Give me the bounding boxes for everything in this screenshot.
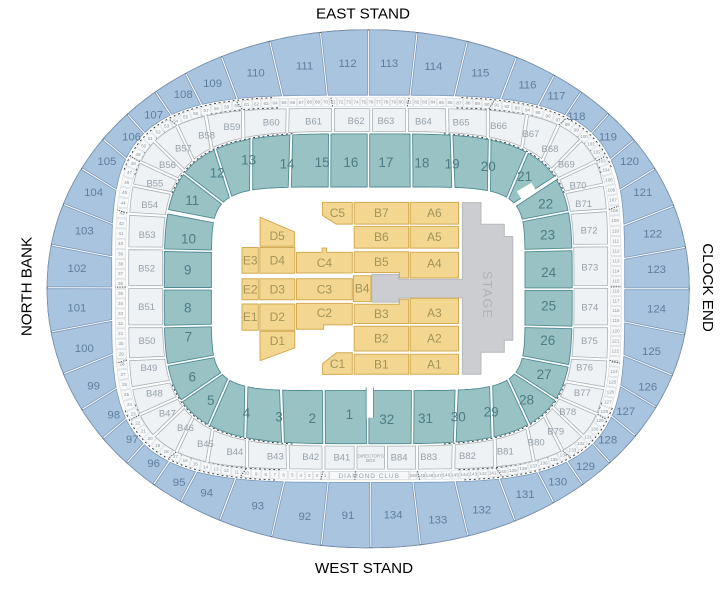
svg-text:102: 102 <box>67 263 86 275</box>
svg-text:7: 7 <box>274 472 277 477</box>
svg-text:B43: B43 <box>267 451 284 462</box>
svg-text:59: 59 <box>224 104 230 109</box>
svg-text:24: 24 <box>127 402 133 407</box>
svg-text:98: 98 <box>565 122 571 127</box>
svg-text:32: 32 <box>118 321 124 326</box>
svg-text:B1: B1 <box>374 357 389 371</box>
svg-text:100: 100 <box>580 134 588 139</box>
svg-text:B41: B41 <box>333 452 350 463</box>
svg-text:131: 131 <box>584 434 592 439</box>
svg-text:B60: B60 <box>263 118 280 129</box>
svg-text:B54: B54 <box>141 200 158 211</box>
svg-text:9: 9 <box>255 471 258 476</box>
svg-text:CLOCK END: CLOCK END <box>699 243 716 332</box>
svg-text:21: 21 <box>517 169 532 184</box>
svg-text:B50: B50 <box>139 336 156 347</box>
svg-text:B63: B63 <box>377 116 394 127</box>
svg-text:61: 61 <box>244 102 250 107</box>
svg-text:132: 132 <box>472 505 491 517</box>
svg-text:E2: E2 <box>243 282 258 296</box>
svg-text:39: 39 <box>118 251 124 256</box>
svg-text:95: 95 <box>173 477 186 489</box>
svg-text:12: 12 <box>224 468 230 473</box>
svg-text:15: 15 <box>193 462 199 467</box>
svg-text:38: 38 <box>118 261 124 266</box>
svg-text:100: 100 <box>75 343 94 355</box>
svg-text:115: 115 <box>612 279 620 284</box>
svg-text:B59: B59 <box>224 122 241 133</box>
svg-text:128: 128 <box>598 435 617 447</box>
svg-text:B66: B66 <box>490 121 507 132</box>
svg-text:82: 82 <box>414 100 420 105</box>
svg-text:121: 121 <box>633 187 652 199</box>
svg-text:26: 26 <box>122 382 128 387</box>
svg-text:126: 126 <box>607 390 615 395</box>
svg-text:40: 40 <box>118 241 124 246</box>
svg-text:106: 106 <box>122 131 141 143</box>
svg-text:60: 60 <box>234 103 240 108</box>
svg-text:D3: D3 <box>270 282 286 296</box>
svg-text:B51: B51 <box>138 302 155 313</box>
svg-text:A5: A5 <box>427 230 442 244</box>
svg-text:63: 63 <box>263 101 269 106</box>
svg-text:D5: D5 <box>270 229 286 243</box>
svg-text:31: 31 <box>418 411 433 426</box>
svg-text:27: 27 <box>537 367 552 382</box>
svg-text:101: 101 <box>587 142 595 147</box>
svg-text:32: 32 <box>379 412 394 427</box>
svg-text:141: 141 <box>489 470 497 475</box>
svg-text:129: 129 <box>576 461 595 473</box>
svg-text:B83: B83 <box>420 452 437 463</box>
svg-text:46: 46 <box>124 180 130 185</box>
svg-text:121: 121 <box>612 338 620 343</box>
svg-text:B58: B58 <box>198 130 215 141</box>
svg-text:B77: B77 <box>574 388 591 399</box>
svg-text:20: 20 <box>481 159 496 174</box>
svg-text:69: 69 <box>315 100 321 105</box>
svg-text:11: 11 <box>234 470 239 475</box>
svg-text:113: 113 <box>380 58 398 70</box>
svg-text:90: 90 <box>484 102 490 107</box>
svg-text:A2: A2 <box>427 332 442 346</box>
svg-text:B45: B45 <box>197 439 214 450</box>
svg-text:122: 122 <box>643 229 662 241</box>
svg-text:48: 48 <box>131 161 137 166</box>
svg-text:33: 33 <box>118 311 124 316</box>
svg-text:144: 144 <box>460 472 468 477</box>
svg-text:B65: B65 <box>453 117 470 128</box>
svg-text:E1: E1 <box>243 310 258 324</box>
svg-text:3: 3 <box>308 473 311 478</box>
svg-text:3: 3 <box>275 410 283 425</box>
svg-text:D4: D4 <box>270 253 286 267</box>
svg-text:B71: B71 <box>575 199 592 210</box>
svg-text:81: 81 <box>406 100 412 105</box>
svg-text:66: 66 <box>290 100 296 105</box>
svg-text:4: 4 <box>243 406 251 421</box>
svg-text:93: 93 <box>251 500 264 512</box>
svg-text:2: 2 <box>316 473 319 478</box>
svg-text:92: 92 <box>504 104 510 109</box>
svg-text:135: 135 <box>550 457 558 462</box>
svg-text:114: 114 <box>424 61 442 73</box>
svg-text:97: 97 <box>126 434 139 446</box>
svg-text:101: 101 <box>67 303 86 315</box>
svg-text:1: 1 <box>324 473 327 478</box>
svg-text:107: 107 <box>609 198 617 203</box>
svg-text:110: 110 <box>612 228 620 233</box>
svg-text:B64: B64 <box>415 116 432 127</box>
svg-text:34: 34 <box>118 301 124 306</box>
svg-text:17: 17 <box>378 155 393 170</box>
svg-text:137: 137 <box>530 464 538 469</box>
svg-text:109: 109 <box>611 218 619 223</box>
svg-text:50: 50 <box>141 144 147 149</box>
svg-text:70: 70 <box>323 100 329 105</box>
svg-text:117: 117 <box>547 90 565 102</box>
svg-text:B3: B3 <box>374 307 389 321</box>
svg-text:111: 111 <box>296 61 313 73</box>
svg-text:B49: B49 <box>140 363 157 374</box>
svg-text:10: 10 <box>181 232 196 247</box>
svg-text:22: 22 <box>135 420 141 425</box>
svg-text:B73: B73 <box>581 263 598 274</box>
svg-text:51: 51 <box>148 136 154 141</box>
svg-text:E3: E3 <box>243 253 258 267</box>
svg-text:28: 28 <box>519 393 534 408</box>
svg-text:117: 117 <box>612 298 620 303</box>
svg-text:B61: B61 <box>305 116 322 127</box>
svg-text:87: 87 <box>456 100 462 105</box>
svg-text:13: 13 <box>241 153 256 168</box>
svg-text:19: 19 <box>155 443 161 448</box>
svg-text:30: 30 <box>451 410 466 425</box>
svg-text:44: 44 <box>120 200 126 205</box>
svg-text:119: 119 <box>599 132 617 144</box>
svg-text:14: 14 <box>280 156 296 171</box>
svg-text:36: 36 <box>118 281 124 286</box>
svg-text:95: 95 <box>535 110 541 115</box>
svg-text:45: 45 <box>122 190 128 195</box>
svg-text:134: 134 <box>560 453 568 458</box>
svg-text:96: 96 <box>546 113 552 118</box>
svg-text:B44: B44 <box>226 447 243 458</box>
svg-text:30: 30 <box>118 341 124 346</box>
svg-text:B48: B48 <box>146 389 163 400</box>
svg-text:41: 41 <box>118 231 124 236</box>
svg-text:125: 125 <box>609 379 617 384</box>
svg-text:31: 31 <box>118 331 124 336</box>
svg-text:DIAMOND CLUB: DIAMOND CLUB <box>339 473 400 480</box>
svg-text:120: 120 <box>612 328 620 333</box>
svg-text:105: 105 <box>605 177 613 182</box>
svg-text:133: 133 <box>569 447 577 452</box>
svg-text:B84: B84 <box>391 452 408 463</box>
svg-text:29: 29 <box>119 351 125 356</box>
svg-text:B79: B79 <box>547 427 564 438</box>
svg-text:A4: A4 <box>427 257 442 271</box>
svg-text:77: 77 <box>376 100 382 105</box>
svg-text:12: 12 <box>210 166 225 181</box>
svg-text:113: 113 <box>612 259 620 264</box>
svg-text:94: 94 <box>525 108 531 113</box>
svg-text:25: 25 <box>541 298 556 313</box>
svg-text:85: 85 <box>439 100 445 105</box>
svg-text:B56: B56 <box>159 160 176 171</box>
svg-text:B7: B7 <box>374 206 389 220</box>
svg-text:65: 65 <box>282 100 288 105</box>
svg-text:146: 146 <box>442 473 450 478</box>
svg-text:111: 111 <box>612 239 619 244</box>
svg-text:94: 94 <box>200 488 213 500</box>
svg-text:6: 6 <box>188 369 196 384</box>
svg-text:B80: B80 <box>528 438 545 449</box>
svg-text:23: 23 <box>131 411 137 416</box>
svg-text:126: 126 <box>638 382 657 394</box>
svg-text:73: 73 <box>346 100 352 105</box>
svg-text:74: 74 <box>353 100 359 105</box>
svg-text:WEST STAND: WEST STAND <box>315 560 413 577</box>
svg-text:98: 98 <box>107 410 120 422</box>
svg-text:5: 5 <box>207 393 215 408</box>
svg-text:91: 91 <box>494 103 500 108</box>
svg-text:C2: C2 <box>317 306 333 320</box>
svg-text:64: 64 <box>273 100 279 105</box>
svg-text:147: 147 <box>434 473 442 478</box>
svg-text:21: 21 <box>141 429 147 434</box>
svg-text:132: 132 <box>577 441 585 446</box>
svg-text:B52: B52 <box>138 263 155 274</box>
svg-text:15: 15 <box>315 155 330 170</box>
svg-text:106: 106 <box>607 187 615 192</box>
svg-text:58: 58 <box>214 106 220 111</box>
svg-text:138: 138 <box>519 466 527 471</box>
svg-text:25: 25 <box>124 392 130 397</box>
svg-text:42: 42 <box>119 221 125 226</box>
svg-text:99: 99 <box>87 381 100 393</box>
svg-text:35: 35 <box>118 291 124 296</box>
svg-text:11: 11 <box>185 193 199 208</box>
svg-text:9: 9 <box>184 262 192 277</box>
svg-text:28: 28 <box>119 362 125 367</box>
svg-text:145: 145 <box>451 472 459 477</box>
svg-text:13: 13 <box>213 467 219 472</box>
svg-text:110: 110 <box>247 68 265 80</box>
svg-text:97: 97 <box>555 117 561 122</box>
svg-text:8: 8 <box>264 472 267 477</box>
svg-text:89: 89 <box>475 101 481 106</box>
svg-text:B81: B81 <box>497 447 514 458</box>
svg-text:16: 16 <box>343 155 358 170</box>
svg-text:139: 139 <box>509 468 517 473</box>
svg-text:104: 104 <box>602 168 610 173</box>
svg-text:119: 119 <box>612 318 620 323</box>
svg-text:130: 130 <box>548 477 567 489</box>
svg-text:92: 92 <box>298 511 311 523</box>
svg-text:99: 99 <box>574 128 580 133</box>
svg-text:C1: C1 <box>330 357 346 371</box>
svg-text:NORTH BANK: NORTH BANK <box>19 237 36 336</box>
svg-text:114: 114 <box>612 269 620 274</box>
svg-text:B53: B53 <box>139 230 156 241</box>
svg-text:103: 103 <box>75 226 94 238</box>
svg-text:133: 133 <box>428 514 447 526</box>
svg-text:37: 37 <box>118 271 124 276</box>
svg-text:109: 109 <box>203 78 222 90</box>
svg-text:B75: B75 <box>581 336 598 347</box>
svg-text:A1: A1 <box>427 357 442 371</box>
svg-text:115: 115 <box>471 68 489 80</box>
svg-text:108: 108 <box>174 89 193 101</box>
svg-text:52: 52 <box>156 129 162 134</box>
svg-text:72: 72 <box>338 100 344 105</box>
svg-text:D1: D1 <box>270 334 286 348</box>
svg-text:104: 104 <box>84 187 103 199</box>
svg-text:127: 127 <box>604 399 612 404</box>
svg-text:B74: B74 <box>581 303 598 314</box>
svg-text:B82: B82 <box>459 451 476 462</box>
svg-text:B68: B68 <box>542 144 559 155</box>
svg-text:4: 4 <box>300 473 303 478</box>
svg-text:B2: B2 <box>374 332 389 346</box>
svg-text:80: 80 <box>399 100 405 105</box>
svg-text:143: 143 <box>469 472 477 477</box>
svg-text:B55: B55 <box>146 178 163 189</box>
svg-text:19: 19 <box>445 156 460 171</box>
svg-text:128: 128 <box>600 409 608 414</box>
svg-text:57: 57 <box>204 108 210 113</box>
svg-text:96: 96 <box>147 458 160 470</box>
svg-text:123: 123 <box>647 264 666 276</box>
svg-text:129: 129 <box>596 418 604 423</box>
svg-text:107: 107 <box>144 109 163 121</box>
svg-text:14: 14 <box>203 464 209 469</box>
svg-text:16: 16 <box>183 458 189 463</box>
svg-text:83: 83 <box>422 100 428 105</box>
svg-text:B46: B46 <box>177 423 194 434</box>
svg-text:55: 55 <box>183 114 189 119</box>
svg-text:B57: B57 <box>175 144 192 155</box>
svg-text:1: 1 <box>346 407 354 422</box>
svg-text:56: 56 <box>193 111 199 116</box>
svg-text:93: 93 <box>515 106 521 111</box>
svg-text:BOX: BOX <box>366 458 375 463</box>
svg-text:76: 76 <box>368 100 374 105</box>
svg-text:125: 125 <box>642 346 661 358</box>
svg-text:26: 26 <box>540 333 555 348</box>
svg-text:68: 68 <box>307 100 313 105</box>
svg-text:124: 124 <box>647 304 666 316</box>
svg-text:102: 102 <box>593 150 601 155</box>
svg-text:B47: B47 <box>159 408 176 419</box>
svg-text:86: 86 <box>447 100 453 105</box>
svg-text:116: 116 <box>518 79 536 91</box>
svg-text:20: 20 <box>148 436 154 441</box>
svg-text:84: 84 <box>430 100 436 105</box>
svg-text:6: 6 <box>282 473 285 478</box>
svg-text:75: 75 <box>361 100 367 105</box>
svg-text:27: 27 <box>120 372 126 377</box>
svg-text:136: 136 <box>540 461 548 466</box>
svg-text:122: 122 <box>611 349 619 354</box>
svg-text:124: 124 <box>610 369 618 374</box>
svg-text:53: 53 <box>164 124 170 129</box>
svg-text:C3: C3 <box>317 282 333 296</box>
svg-text:140: 140 <box>499 469 507 474</box>
svg-text:130: 130 <box>591 427 599 432</box>
svg-text:134: 134 <box>384 510 403 522</box>
svg-text:B72: B72 <box>581 226 598 237</box>
svg-text:B4: B4 <box>355 282 370 296</box>
svg-text:B42: B42 <box>302 452 319 463</box>
svg-text:49: 49 <box>135 152 141 157</box>
svg-text:18: 18 <box>164 449 170 454</box>
svg-text:47: 47 <box>127 170 133 175</box>
svg-text:24: 24 <box>541 265 557 280</box>
svg-text:142: 142 <box>479 471 487 476</box>
svg-text:C5: C5 <box>330 206 346 220</box>
svg-text:23: 23 <box>540 227 555 242</box>
svg-text:5: 5 <box>291 473 294 478</box>
svg-text:112: 112 <box>339 58 357 70</box>
svg-text:112: 112 <box>612 249 620 254</box>
svg-text:22: 22 <box>538 197 553 212</box>
svg-text:D2: D2 <box>270 310 286 324</box>
svg-text:127: 127 <box>616 406 635 418</box>
svg-text:B5: B5 <box>374 255 389 269</box>
svg-text:29: 29 <box>484 405 499 420</box>
svg-text:67: 67 <box>299 100 305 105</box>
svg-text:79: 79 <box>391 100 397 105</box>
svg-text:120: 120 <box>620 156 639 168</box>
svg-text:B70: B70 <box>570 181 587 192</box>
svg-text:118: 118 <box>612 308 620 313</box>
svg-text:B6: B6 <box>374 230 389 244</box>
svg-text:B67: B67 <box>522 129 539 140</box>
svg-text:B62: B62 <box>348 116 365 127</box>
svg-text:A6: A6 <box>427 206 442 220</box>
svg-text:78: 78 <box>383 100 389 105</box>
svg-text:116: 116 <box>612 288 620 293</box>
svg-text:18: 18 <box>414 155 429 170</box>
svg-text:8: 8 <box>184 300 192 315</box>
svg-text:105: 105 <box>97 156 116 168</box>
svg-text:STAGE: STAGE <box>480 271 495 319</box>
svg-text:91: 91 <box>342 510 355 522</box>
svg-text:A3: A3 <box>427 306 442 320</box>
svg-text:7: 7 <box>185 330 193 345</box>
svg-text:150: 150 <box>410 473 418 478</box>
svg-text:EAST STAND: EAST STAND <box>316 6 410 23</box>
svg-text:88: 88 <box>465 101 471 106</box>
svg-text:C4: C4 <box>317 256 333 270</box>
svg-text:2: 2 <box>309 411 317 426</box>
svg-text:131: 131 <box>516 489 535 501</box>
svg-text:148: 148 <box>426 473 434 478</box>
svg-text:62: 62 <box>254 101 260 106</box>
svg-text:B76: B76 <box>576 363 593 374</box>
svg-text:B69: B69 <box>558 160 575 171</box>
svg-text:B78: B78 <box>559 407 576 418</box>
